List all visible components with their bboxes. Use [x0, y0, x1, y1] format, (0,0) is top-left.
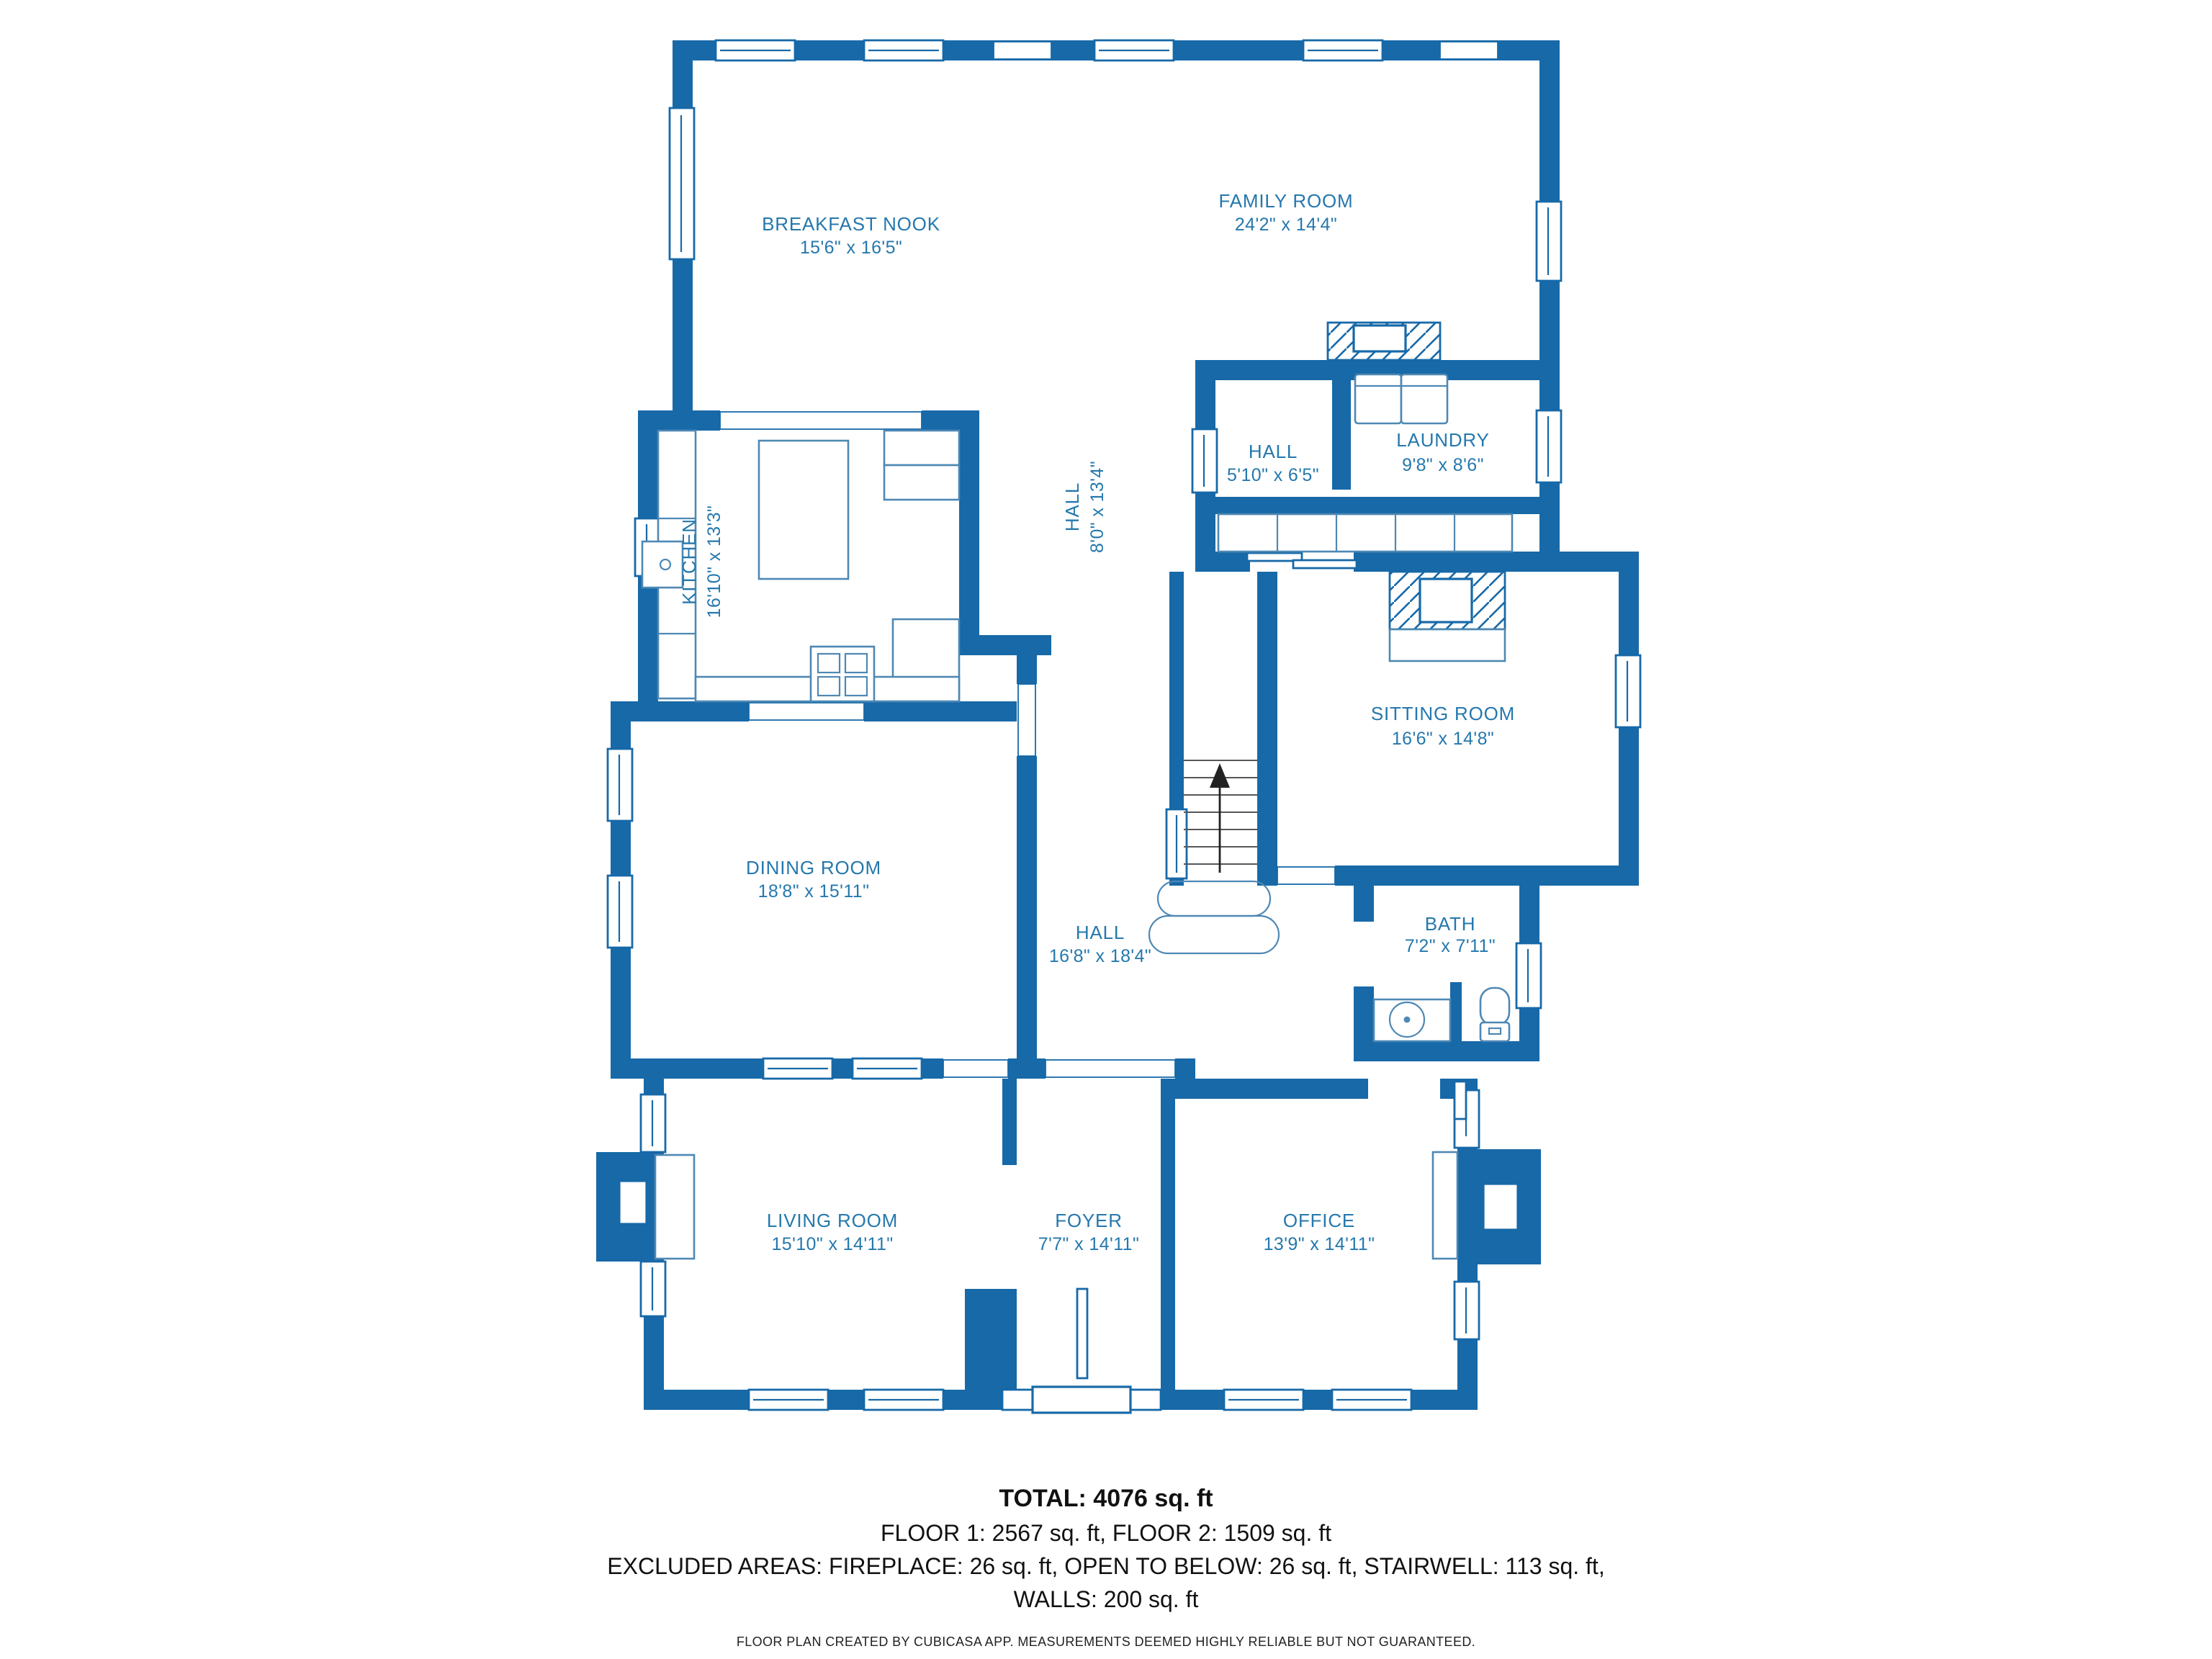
floor-plan-canvas: BREAKFAST NOOK 15'6" x 16'5" FAMILY ROOM… [0, 0, 2212, 1659]
room-label-bath: BATH 7'2" x 7'11" [1405, 913, 1496, 956]
room-dims: 7'7" x 14'11" [1038, 1234, 1139, 1254]
washer [1355, 374, 1401, 423]
wall-opening [994, 42, 1051, 59]
room-dims: 16'8" x 18'4" [1049, 946, 1151, 966]
office-fireplace [1433, 1149, 1541, 1264]
excluded-areas-text: EXCLUDED AREAS: FIREPLACE: 26 sq. ft, OP… [607, 1553, 1604, 1579]
window [1303, 40, 1382, 60]
room-name: BREAKFAST NOOK [762, 213, 940, 235]
room-label-family-room: FAMILY ROOM 24'2" x 14'4" [1219, 190, 1354, 235]
window [1224, 1390, 1303, 1410]
room-name: LIVING ROOM [767, 1210, 898, 1231]
front-door [1002, 1387, 1161, 1413]
room-dims: 5'10" x 6'5" [1227, 465, 1319, 485]
room-dims: 15'6" x 16'5" [800, 238, 902, 258]
wall-opening [1440, 42, 1498, 59]
floor-plan-page: BREAKFAST NOOK 15'6" x 16'5" FAMILY ROOM… [0, 0, 2212, 1659]
disclaimer-text: FLOOR PLAN CREATED BY CUBICASA APP. MEAS… [737, 1635, 1475, 1649]
room-dims: 16'10" x 13'3" [704, 505, 724, 619]
floor-areas-text: FLOOR 1: 2567 sq. ft, FLOOR 2: 1509 sq. … [881, 1520, 1331, 1546]
room-name: FOYER [1055, 1210, 1123, 1231]
room-name: FAMILY ROOM [1219, 190, 1354, 212]
door-opening [1018, 684, 1035, 756]
room-name: KITCHEN [678, 518, 700, 605]
sliding-door [1247, 553, 1357, 568]
window [1455, 1282, 1479, 1339]
window [1094, 40, 1174, 60]
window [641, 1094, 665, 1152]
total-area-text: TOTAL: 4076 sq. ft [999, 1485, 1213, 1512]
room-label-foyer: FOYER 7'7" x 14'11" [1038, 1210, 1139, 1254]
room-name: LAUNDRY [1396, 429, 1489, 451]
window [749, 1390, 828, 1410]
window [608, 876, 632, 948]
summary-block: TOTAL: 4076 sq. ft FLOOR 1: 2567 sq. ft,… [607, 1485, 1604, 1649]
window [853, 1058, 922, 1079]
room-dims: 8'0" x 13'4" [1087, 461, 1107, 553]
door-leaf [1455, 1082, 1466, 1119]
door-leaf [1077, 1289, 1087, 1378]
room-label-office: OFFICE 13'9" x 14'11" [1264, 1210, 1375, 1254]
window [641, 1262, 665, 1316]
room-label-sitting-room: SITTING ROOM 16'6" x 14'8" [1371, 703, 1515, 749]
cased-opening [1046, 1060, 1175, 1077]
door-opening [1277, 867, 1335, 884]
room-label-dining-room: DINING ROOM 18'8" x 15'11" [746, 857, 881, 902]
window [608, 749, 632, 821]
window [1192, 429, 1217, 493]
stove [811, 647, 874, 701]
cased-opening [749, 703, 864, 720]
window [670, 108, 694, 259]
room-dims: 24'2" x 14'4" [1235, 215, 1337, 235]
room-label-hall-corridor: HALL 8'0" x 13'4" [1061, 461, 1107, 553]
window [1537, 410, 1561, 482]
window [716, 40, 795, 60]
kitchen-island [759, 441, 848, 579]
window [1516, 943, 1541, 1008]
window [1166, 809, 1187, 878]
window [763, 1058, 832, 1079]
room-label-hall-upper: HALL 5'10" x 6'5" [1227, 441, 1319, 485]
room-dims: 9'8" x 8'6" [1402, 455, 1484, 475]
toilet [1480, 988, 1509, 1041]
room-label-living-room: LIVING ROOM 15'10" x 14'11" [767, 1210, 898, 1254]
window [864, 40, 943, 60]
room-name: HALL [1249, 441, 1298, 462]
bath-fixtures [1374, 988, 1509, 1041]
room-name: DINING ROOM [746, 857, 881, 878]
room-dims: 16'6" x 14'8" [1392, 729, 1494, 749]
window [1332, 1390, 1411, 1410]
room-dims: 18'8" x 15'11" [758, 881, 870, 902]
room-dims: 7'2" x 7'11" [1405, 936, 1496, 956]
window [1616, 655, 1640, 727]
living-room-fireplace [596, 1152, 694, 1262]
room-dims: 15'10" x 14'11" [771, 1234, 893, 1254]
walls-area-text: WALLS: 200 sq. ft [1014, 1586, 1199, 1612]
closet-row [1218, 514, 1512, 552]
room-label-laundry: LAUNDRY 9'8" x 8'6" [1396, 429, 1489, 475]
stairs-up-arrow-icon [1210, 763, 1230, 873]
sitting-room-fireplace [1390, 572, 1505, 661]
dryer [1401, 374, 1447, 423]
wall-opening [943, 1060, 1008, 1077]
kitchen-sink [642, 541, 683, 588]
window [864, 1390, 943, 1410]
cased-opening [720, 412, 922, 429]
room-name: HALL [1076, 922, 1125, 943]
room-name: BATH [1425, 913, 1476, 935]
stairs-curved-landing [1149, 881, 1279, 953]
family-room-fireplace [1328, 323, 1440, 360]
room-label-hall-main: HALL 16'8" x 18'4" [1049, 922, 1151, 966]
room-name: OFFICE [1283, 1210, 1355, 1231]
window [1537, 202, 1561, 281]
room-label-breakfast-nook: BREAKFAST NOOK 15'6" x 16'5" [762, 213, 940, 258]
room-label-kitchen: KITCHEN 16'10" x 13'3" [678, 505, 724, 619]
room-dims: 13'9" x 14'11" [1264, 1234, 1375, 1254]
bath-vanity [1374, 999, 1450, 1041]
room-name: SITTING ROOM [1371, 703, 1515, 724]
room-name: HALL [1061, 482, 1083, 531]
